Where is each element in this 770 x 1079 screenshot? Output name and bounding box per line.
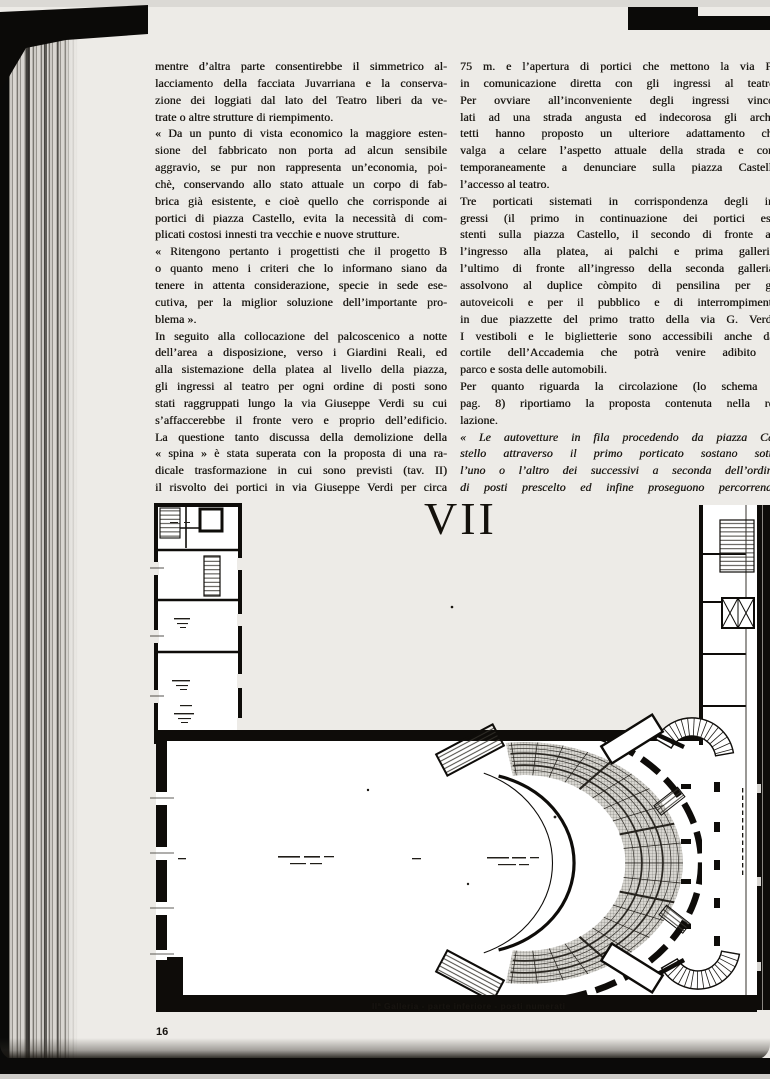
- text-line: « Ritengono pertanto i progettisti che i…: [155, 243, 447, 260]
- text-line: In seguito alla collocazione del palcosc…: [155, 328, 447, 345]
- scan-edge-left: [0, 12, 78, 1060]
- text-line: l’accesso al teatro.: [460, 176, 770, 193]
- text-line: alla sistemazione della platea al livell…: [155, 361, 447, 378]
- page-top-margin: [0, 0, 770, 7]
- article-left-column: mentre d’altra parte consentirebbe il si…: [155, 58, 447, 496]
- text-line: lazione.: [460, 412, 770, 429]
- stairs: [204, 556, 220, 596]
- text-line: gli ingressi al teatro per ogni ordine d…: [155, 378, 447, 395]
- text-line: o quanto meno i criteri che lo informano…: [155, 260, 447, 277]
- text-line: cortile dell’Accademia che potrà venire …: [460, 344, 770, 361]
- text-line: tenere in attenta considerazione, specie…: [155, 277, 447, 294]
- paragraph: In seguito alla collocazione del palcosc…: [155, 328, 447, 496]
- text-line: « Da un punto di vista economico la magg…: [155, 125, 447, 142]
- text-line: Per quanto riguarda la circolazione (lo …: [460, 378, 770, 395]
- stairs-crossed: [722, 598, 754, 628]
- text-line: Per ovviare all’inconveniente degli ingr…: [460, 92, 770, 109]
- paragraph: 75 m. e l’apertura di portici che metton…: [460, 58, 770, 193]
- text-line: stello attraverso il primo porticato sos…: [460, 445, 770, 462]
- text-line: « Le autovetture in fila procedendo da p…: [460, 429, 770, 446]
- text-line: La questione tanto discussa della demoli…: [155, 429, 447, 446]
- scan-edge-bottom-shadow: [0, 1038, 770, 1060]
- text-line: l’ultimo di fronte all’ingresso della se…: [460, 260, 770, 277]
- text-line: sione del fabbricato non porta ad alcun …: [155, 142, 447, 159]
- text-line: parco e sosta delle automobili.: [460, 361, 770, 378]
- paragraph: Per quanto riguarda la circolazione (lo …: [460, 378, 770, 429]
- paragraph: mentre d’altra parte consentirebbe il si…: [155, 58, 447, 125]
- scan-edge-bottom-rest: [0, 1074, 770, 1079]
- text-line: assolvono al duplice còmpito di pensilin…: [460, 277, 770, 294]
- text-line: lacciamento della facciata Juvarriana e …: [155, 75, 447, 92]
- text-line: in comunicazione diretta con gli ingress…: [460, 75, 770, 92]
- text-line: zione dei loggiati dal lato del Teatro l…: [155, 92, 447, 109]
- text-line: cutiva, per la miglior soluzione dell’im…: [155, 294, 447, 311]
- paragraph: « Ritengono pertanto i progettisti che i…: [155, 243, 447, 327]
- text-line: temporaneamente a denunciare sulla piazz…: [460, 159, 770, 176]
- left-wing: [150, 505, 243, 742]
- text-line: dell’area a disposizione, verso i Giardi…: [155, 344, 447, 361]
- text-line: stati raggruppati lungo la via Giuseppe …: [155, 395, 447, 412]
- text-line: in due piazzette del primo tratto della …: [460, 311, 770, 328]
- text-line: l’ingresso alla platea, ai palchi e prim…: [460, 243, 770, 260]
- stairs: [720, 520, 754, 572]
- text-line: aggravio, se pur non rappresenta un’econ…: [155, 159, 447, 176]
- text-line: tetti hanno proposto un ulteriore adatta…: [460, 125, 770, 142]
- plan-caption: IIª Galleria - parte inferiore - posti n…: [372, 1001, 565, 1011]
- text-line: chè, conservando allo stato attuale un c…: [155, 176, 447, 193]
- text-line: gressi (il primo in continuazione dei po…: [460, 210, 770, 227]
- text-line: blema ».: [155, 311, 447, 328]
- scan-band-right: [757, 505, 770, 1010]
- text-line: l’uno o l’altro dei successivi a seconda…: [460, 462, 770, 479]
- text-line: plicati costosi innesti tra vecchie e nu…: [155, 226, 447, 243]
- text-line: « spina » è stata superata con la propos…: [155, 445, 447, 462]
- text-line: Tre porticati sistemati in corrispondenz…: [460, 193, 770, 210]
- paragraph: « Le autovetture in fila procedendo da p…: [460, 429, 770, 496]
- paragraph: Tre porticati sistemati in corrispondenz…: [460, 193, 770, 378]
- floor-plan-drawing: [150, 492, 770, 1022]
- article-right-column: 75 m. e l’apertura di portici che metton…: [460, 58, 770, 496]
- page-number: 16: [156, 1026, 168, 1038]
- paragraph: « Da un punto di vista economico la magg…: [155, 125, 447, 243]
- text-line: autoveicoli e per il pubblico e di inter…: [460, 294, 770, 311]
- text-line: portici di piazza Castello, evita la nec…: [155, 210, 447, 227]
- text-line: dicale trasformazione in cui sono previs…: [155, 462, 447, 479]
- text-line: 75 m. e l’apertura di portici che metton…: [460, 58, 770, 75]
- text-line: stenti sulla piazza Castello, il secondo…: [460, 226, 770, 243]
- text-line: s’affaccerebbe il fronte vero e proprio …: [155, 412, 447, 429]
- text-line: brica già esistente, e cioè quello che c…: [155, 193, 447, 210]
- scan-edge-bottom-bar: [0, 1058, 770, 1074]
- text-line: trate o altre strutture di riempimento.: [155, 109, 447, 126]
- text-line: valga a celare l’aspetto attuale della s…: [460, 142, 770, 159]
- text-line: pag. 8) riportiamo la proposta contenuta…: [460, 395, 770, 412]
- text-line: I vestiboli e le biglietterie sono acces…: [460, 328, 770, 345]
- text-line: mentre d’altra parte consentirebbe il si…: [155, 58, 447, 75]
- text-line: lati ad una strada angusta ed indecorosa…: [460, 109, 770, 126]
